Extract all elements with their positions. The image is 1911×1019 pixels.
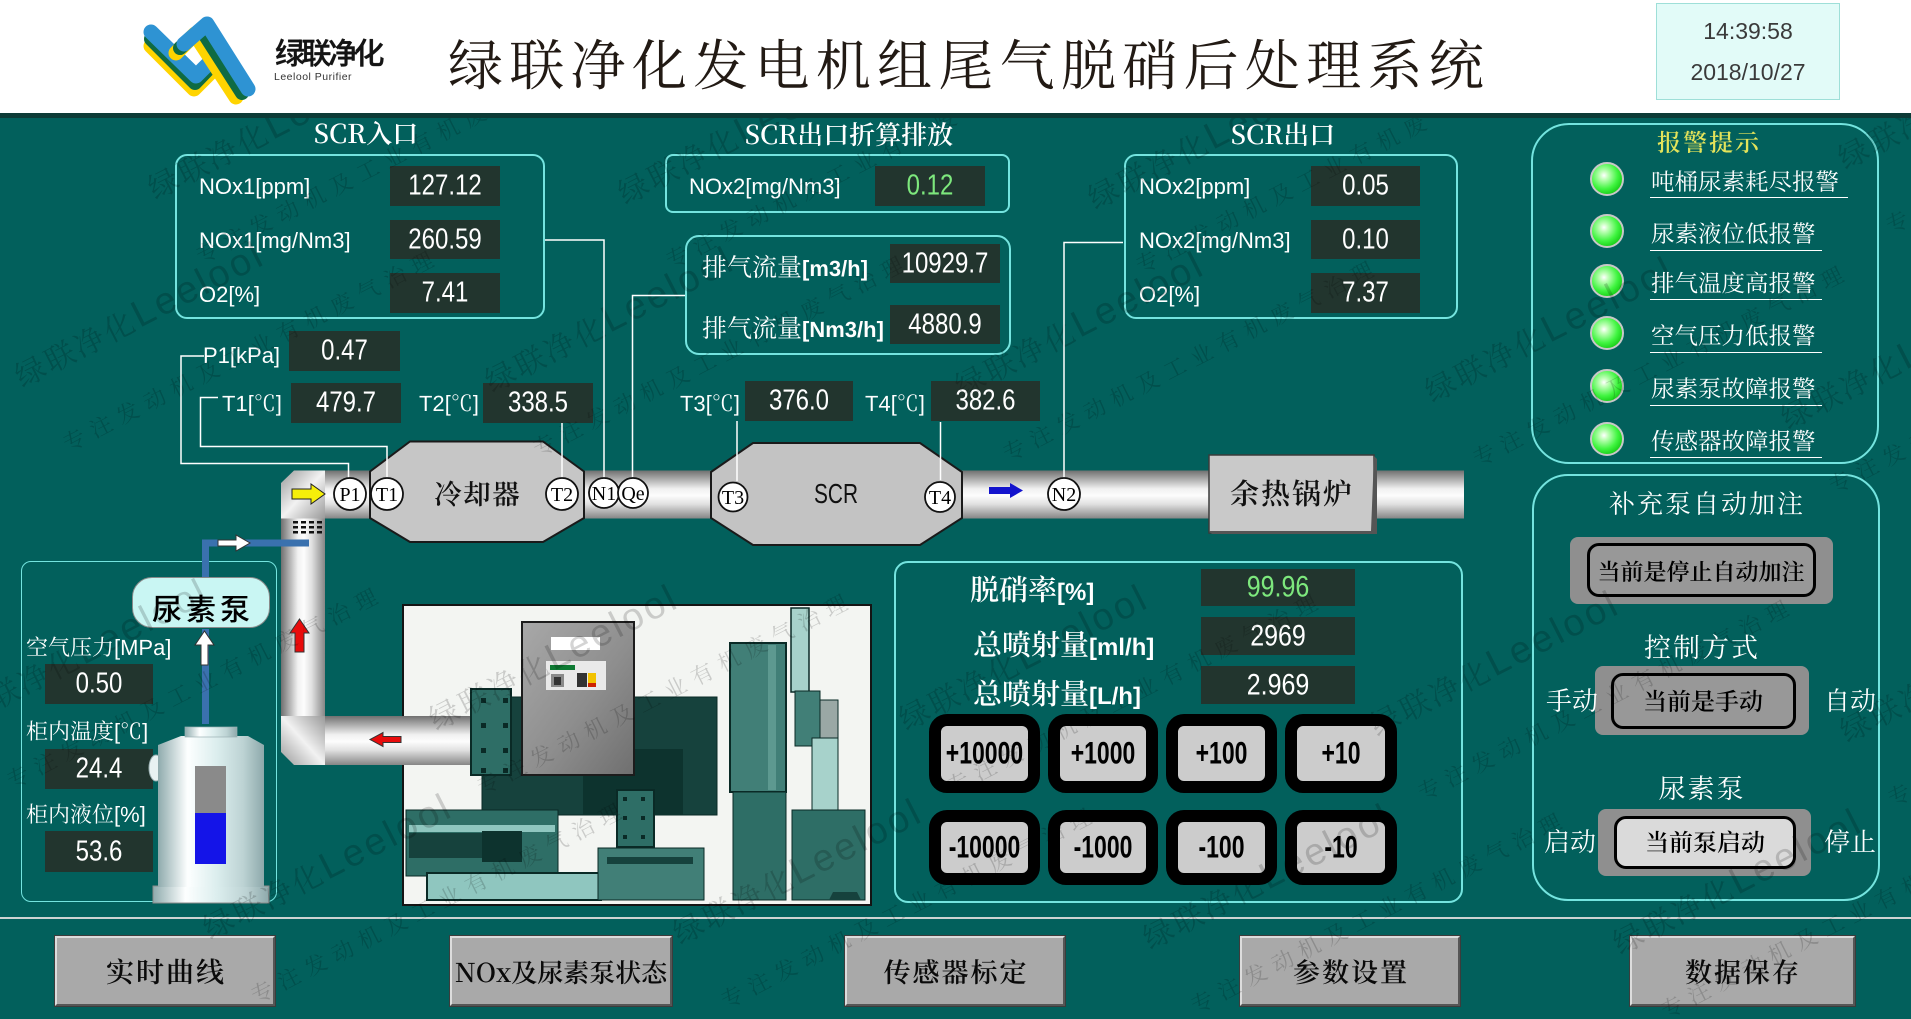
svg-text:T4: T4 xyxy=(929,487,951,509)
svg-text:Qe: Qe xyxy=(621,483,644,505)
svg-text:T3: T3 xyxy=(722,487,744,509)
svg-text:T1: T1 xyxy=(376,484,398,506)
svg-text:SCR: SCR xyxy=(814,478,858,509)
svg-text:P1: P1 xyxy=(339,484,360,506)
svg-text:N1: N1 xyxy=(592,483,616,505)
svg-text:T2: T2 xyxy=(551,484,573,506)
svg-text:N2: N2 xyxy=(1052,484,1076,506)
